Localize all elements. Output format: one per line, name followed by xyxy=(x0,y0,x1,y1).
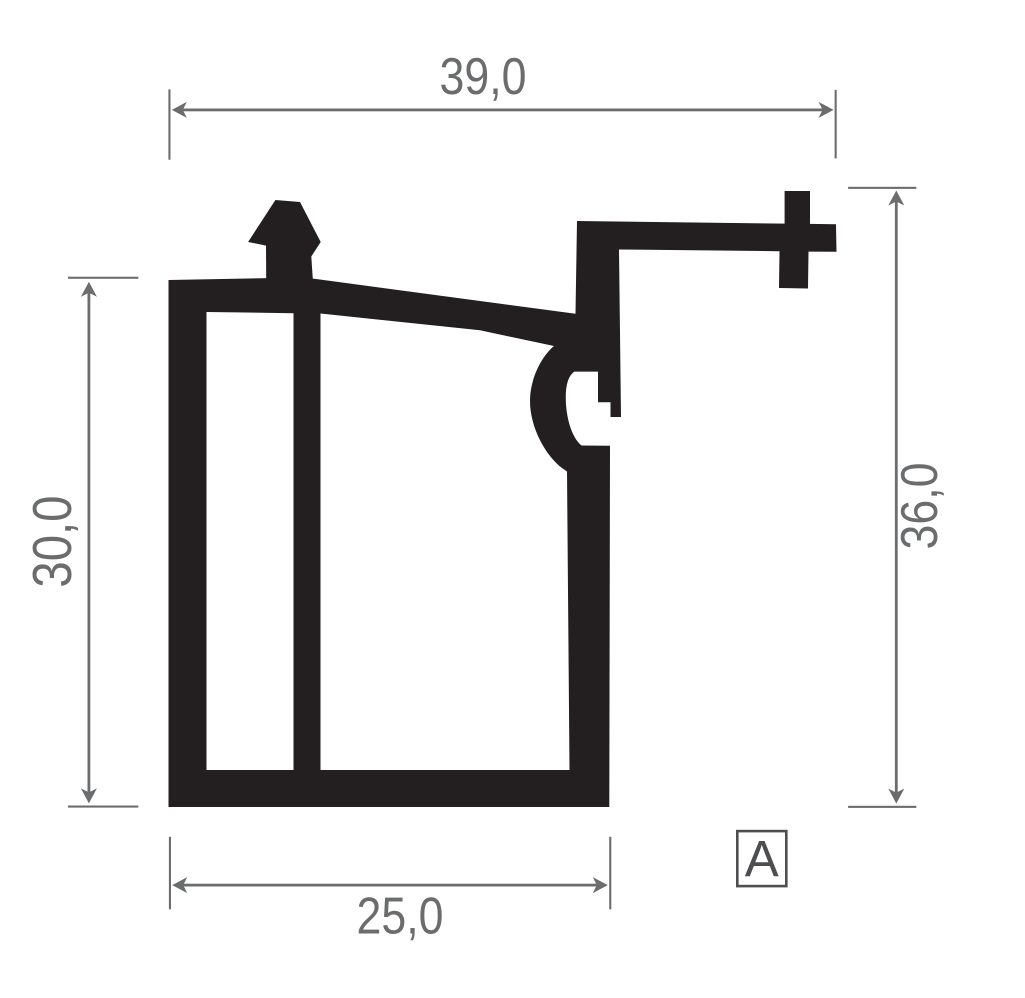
svg-text:36,0: 36,0 xyxy=(891,463,949,550)
svg-text:39,0: 39,0 xyxy=(440,48,527,106)
svg-text:25,0: 25,0 xyxy=(357,888,444,946)
svg-text:30,0: 30,0 xyxy=(21,496,83,588)
svg-text:A: A xyxy=(745,831,779,888)
